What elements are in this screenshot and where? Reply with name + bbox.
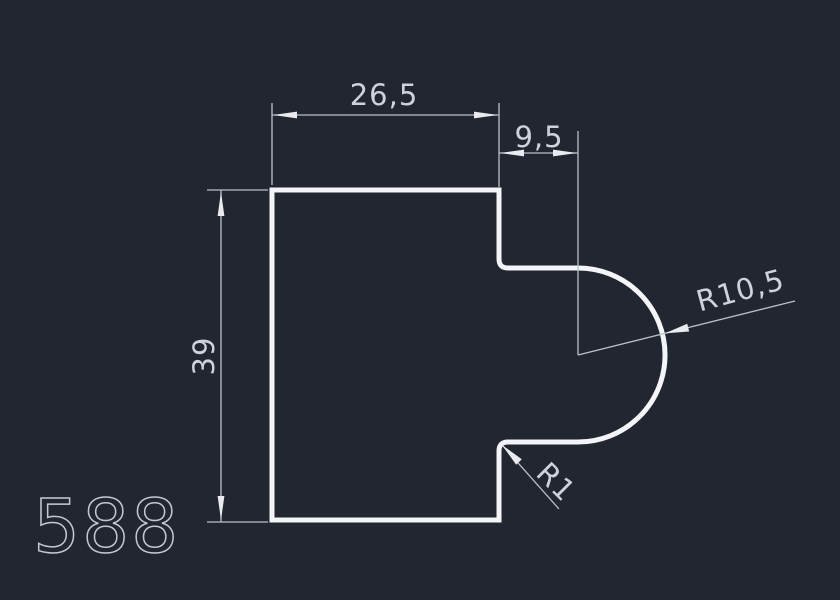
drawing-viewport: 26,5 9,5 39 R10,5 R1 588: [0, 0, 840, 600]
dimension-label-step-width: 9,5: [514, 120, 563, 154]
cad-canvas: 26,5 9,5 39 R10,5 R1 588: [0, 0, 840, 600]
dimension-label-top-width: 26,5: [350, 78, 419, 112]
dimension-label-height: 39: [187, 337, 221, 376]
part-number-label: 588: [33, 484, 180, 570]
